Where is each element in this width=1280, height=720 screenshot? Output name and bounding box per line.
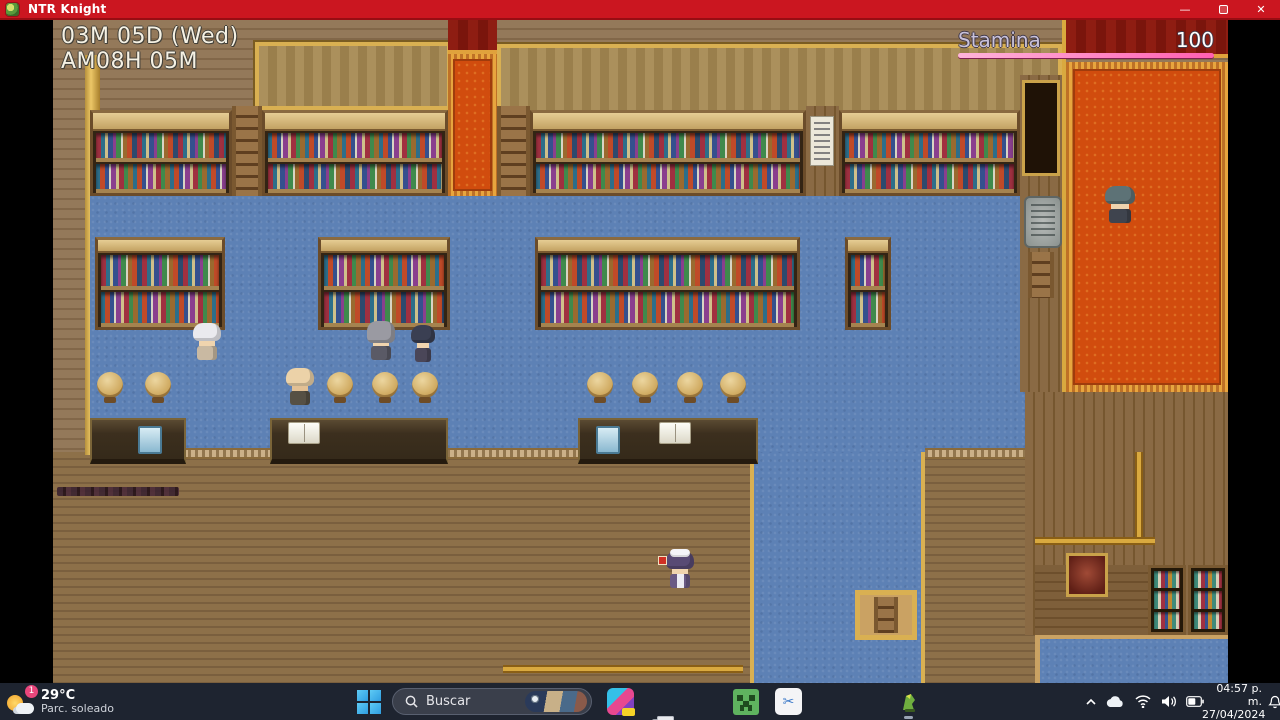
- orange-hall: [1062, 20, 1228, 392]
- white-haired-npc: [193, 323, 221, 363]
- stool: [327, 372, 353, 398]
- hud-clock: AM08H 05M: [61, 49, 239, 74]
- maximize-button[interactable]: [1204, 0, 1242, 18]
- stamina-value: 100: [1176, 28, 1214, 52]
- search-box[interactable]: Buscar: [392, 688, 592, 715]
- item-shelf: [1148, 565, 1186, 635]
- close-icon: ✕: [1256, 3, 1265, 16]
- stool: [720, 372, 746, 398]
- blue-tome: [596, 426, 620, 454]
- hud-calendar: 03M 05D (Wed): [61, 24, 239, 49]
- bookshelf: [839, 110, 1020, 196]
- wall-panel: [255, 42, 451, 110]
- tray-date: 27/04/2024: [1202, 708, 1262, 720]
- window-titlebar: NTR Knight — ✕: [0, 0, 1280, 20]
- ladder: [497, 106, 530, 196]
- stool: [677, 372, 703, 398]
- weather-temperature: 29°C: [41, 689, 114, 703]
- notifications-bell-icon[interactable]: [1262, 688, 1280, 715]
- floor-inscription: [57, 487, 179, 496]
- notification-badge: 1: [25, 685, 38, 698]
- orange-carpet: [1066, 62, 1228, 392]
- teal-haired-npc: [1105, 186, 1135, 226]
- taskbar-icon-minecraft[interactable]: [732, 688, 759, 715]
- stool: [632, 372, 658, 398]
- bookshelf: [318, 237, 450, 330]
- tray-clock[interactable]: 04:57 p. m. 27/04/2024: [1202, 688, 1262, 715]
- window-title: NTR Knight: [28, 2, 106, 16]
- onedrive-icon[interactable]: [1102, 688, 1128, 715]
- taskbar-icon-photo-editor[interactable]: [607, 688, 634, 715]
- item-shelf: [1188, 565, 1228, 635]
- minimize-icon: —: [1180, 3, 1191, 16]
- search-icon: [405, 695, 418, 708]
- stool: [97, 372, 123, 398]
- hud-datetime: 03M 05D (Wed) AM08H 05M: [61, 24, 239, 74]
- ladder: [1028, 252, 1054, 298]
- orange-carpet: [448, 54, 497, 196]
- doorway: [1022, 80, 1060, 176]
- stamina-label: Stamina: [958, 28, 1041, 52]
- app-icon[interactable]: [6, 3, 19, 16]
- screen: NTR Knight — ✕: [0, 0, 1280, 720]
- black-haired-npc: [411, 325, 435, 365]
- blue-carpet: [1035, 635, 1228, 683]
- wifi-icon[interactable]: [1130, 688, 1156, 715]
- open-book: [288, 422, 320, 444]
- stool: [372, 372, 398, 398]
- weather-widget[interactable]: 1 29°C Parc. soleado: [6, 688, 114, 715]
- stool: [145, 372, 171, 398]
- hud-stamina: Stamina 100: [958, 28, 1214, 58]
- open-book: [659, 422, 691, 444]
- game-viewport[interactable]: 03M 05D (Wed) AM08H 05M Stamina 100: [53, 20, 1228, 683]
- creeper-icon: [733, 689, 759, 715]
- tray-time: 04:57 p. m.: [1202, 682, 1262, 708]
- bookshelf: [845, 237, 891, 330]
- tray-chevron-icon[interactable]: [1078, 688, 1104, 715]
- minimize-button[interactable]: —: [1166, 0, 1204, 18]
- taskbar-icon-snipping-tool[interactable]: ✂: [775, 688, 802, 715]
- maid-player-character: [666, 551, 694, 591]
- wall-trim: [503, 665, 743, 673]
- taskbar-icon-documents[interactable]: [649, 715, 676, 720]
- bookshelf: [262, 110, 448, 196]
- volume-icon[interactable]: [1156, 688, 1182, 715]
- alert-emote: [658, 556, 667, 565]
- taskbar-icon-game-launcher[interactable]: [895, 688, 922, 715]
- bookshelf: [535, 237, 800, 330]
- ladder: [874, 597, 898, 633]
- blue-tome: [138, 426, 162, 454]
- blue-aisle: [750, 452, 925, 683]
- ladder: [232, 106, 262, 196]
- search-highlight-image: [525, 691, 587, 712]
- carpet-edge: [925, 448, 1025, 459]
- game-character-icon: [897, 690, 921, 714]
- gray-haired-npc: [367, 321, 395, 361]
- weather-icon: 1: [6, 689, 34, 715]
- maximize-icon: [1219, 5, 1228, 14]
- close-button[interactable]: ✕: [1242, 0, 1280, 18]
- red-curtain-band: [448, 20, 497, 54]
- elderly-bald-npc: [286, 368, 314, 408]
- bookshelf: [90, 110, 232, 196]
- wall-trim: [1035, 537, 1155, 545]
- wall-trim: [1135, 452, 1143, 544]
- stool: [412, 372, 438, 398]
- bookshelf: [95, 237, 225, 330]
- bookshelf: [530, 110, 806, 196]
- stone-sign: [1024, 196, 1062, 248]
- wall-painting: [1066, 553, 1108, 597]
- stamina-bar: [958, 53, 1214, 58]
- notice-poster: [810, 116, 834, 166]
- weather-condition: Parc. soleado: [41, 703, 114, 715]
- game-window: 03M 05D (Wed) AM08H 05M Stamina 100: [0, 20, 1280, 683]
- stair-entrance: [855, 590, 917, 640]
- taskbar: 1 29°C Parc. soleado Buscar ✂: [0, 683, 1280, 720]
- start-button[interactable]: [355, 688, 383, 715]
- orange-strip: [448, 20, 497, 196]
- stool: [587, 372, 613, 398]
- search-placeholder: Buscar: [426, 694, 517, 709]
